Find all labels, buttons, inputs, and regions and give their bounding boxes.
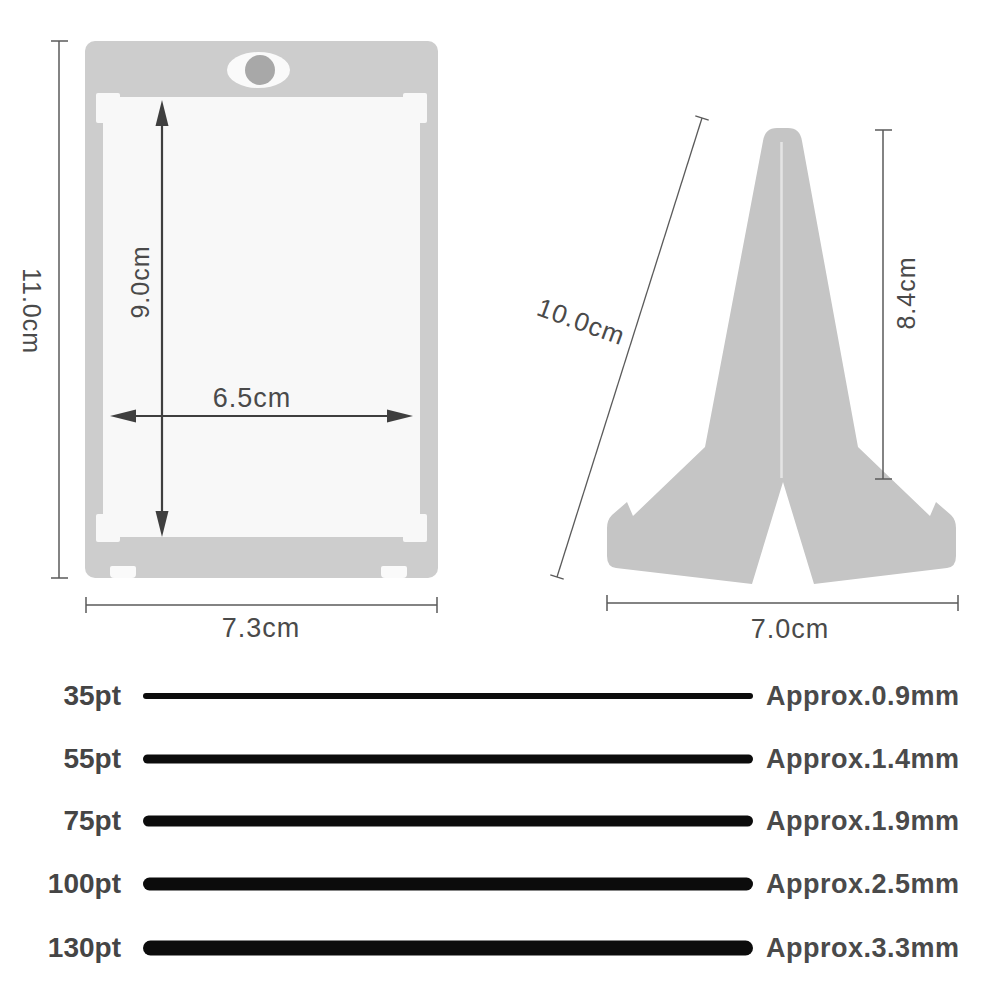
- pt-label: 35pt: [0, 680, 121, 712]
- thickness-bar: [143, 816, 753, 827]
- dim-line-11cm: [51, 41, 68, 578]
- pt-label: 75pt: [0, 805, 121, 837]
- dim-arrow-9cm: [156, 100, 169, 537]
- dim-label-outer-width: 7.3cm: [222, 613, 301, 644]
- pt-label: 55pt: [0, 743, 121, 775]
- dim-label-inner-width: 6.5cm: [213, 383, 292, 414]
- pt-label: 130pt: [0, 932, 121, 964]
- thickness-row: 130pt Approx.3.3mm: [0, 928, 1000, 968]
- mm-label: Approx.0.9mm: [766, 681, 960, 712]
- thickness-bar: [143, 941, 753, 956]
- thickness-row: 100pt Approx.2.5mm: [0, 864, 1000, 904]
- diagram-canvas: [0, 0, 1000, 1000]
- thickness-row: 55pt Approx.1.4mm: [0, 739, 1000, 779]
- pt-label: 100pt: [0, 868, 121, 900]
- thickness-bar: [143, 878, 753, 891]
- thickness-row: 75pt Approx.1.9mm: [0, 801, 1000, 841]
- mm-label: Approx.2.5mm: [766, 869, 960, 900]
- dim-line-7-3cm: [86, 597, 437, 613]
- thickness-bar: [143, 693, 753, 699]
- mm-label: Approx.1.9mm: [766, 806, 960, 837]
- mm-label: Approx.1.4mm: [766, 744, 960, 775]
- dim-label-stand-width: 7.0cm: [751, 614, 830, 645]
- dim-label-inner-height: 9.0cm: [126, 245, 155, 318]
- mm-label: Approx.3.3mm: [766, 933, 960, 964]
- thickness-row: 35pt Approx.0.9mm: [0, 676, 1000, 716]
- dim-line-8-4cm: [875, 130, 892, 479]
- thickness-bar: [143, 755, 753, 764]
- dim-label-outer-height: 11.0cm: [17, 268, 46, 354]
- dim-line-7cm: [607, 595, 958, 611]
- dim-label-stand-height: 8.4cm: [892, 256, 921, 329]
